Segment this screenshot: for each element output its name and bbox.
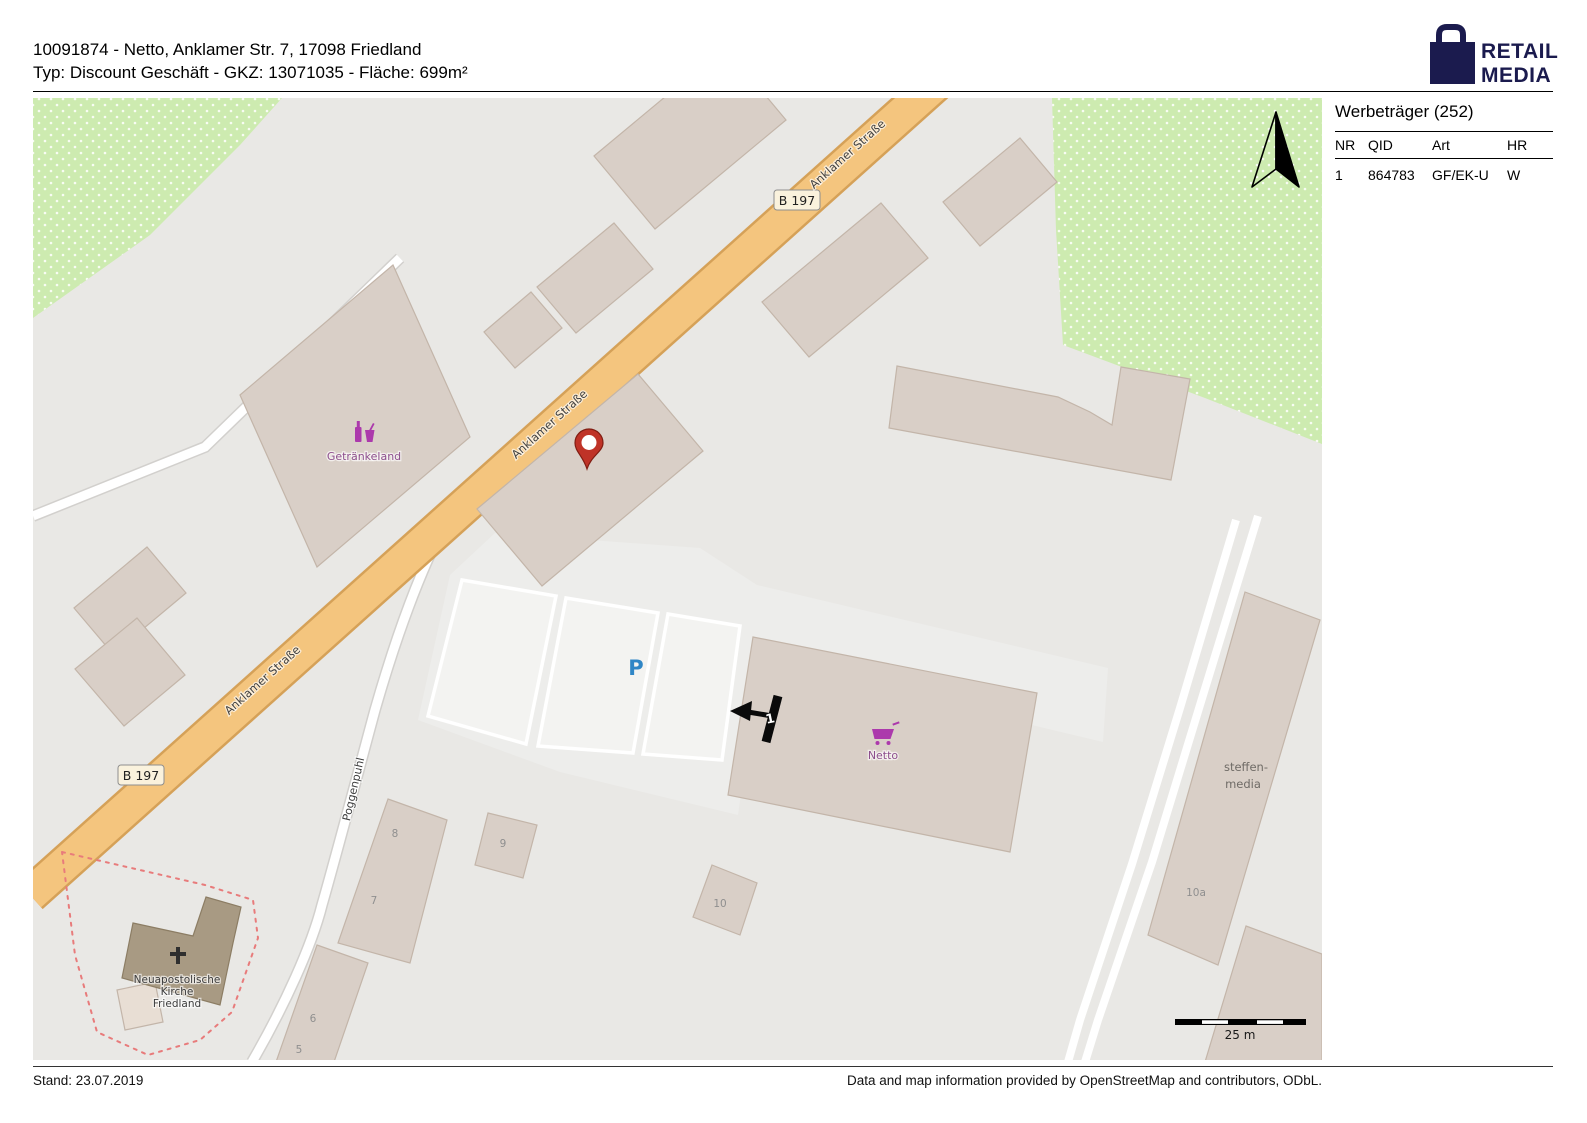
scale-label: 25 m <box>1225 1028 1256 1042</box>
svg-text:5: 5 <box>296 1044 303 1056</box>
col-header-hr: HR <box>1507 137 1553 153</box>
getraenkeland-label: Getränkeland <box>327 450 401 463</box>
cell-nr: 1 <box>1335 167 1368 183</box>
werbetraeger-title: Werbeträger (252) <box>1335 102 1553 122</box>
map: Neuapostolische Kirche Friedland B 197 B… <box>33 98 1322 1060</box>
page-title: 10091874 - Netto, Anklamer Str. 7, 17098… <box>33 40 421 60</box>
parking-icon: P <box>628 656 643 680</box>
col-header-art: Art <box>1432 137 1507 153</box>
svg-text:8: 8 <box>392 828 399 840</box>
footer-attribution: Data and map information provided by Ope… <box>847 1073 1322 1088</box>
svg-text:B 197: B 197 <box>123 768 159 783</box>
page-subtitle: Typ: Discount Geschäft - GKZ: 13071035 -… <box>33 63 468 83</box>
werbetraeger-table-row: 1 864783 GF/EK-U W <box>1335 159 1553 183</box>
svg-text:7: 7 <box>371 895 378 907</box>
netto-label: Netto <box>868 749 899 762</box>
report-page: 10091874 - Netto, Anklamer Str. 7, 17098… <box>0 0 1587 1123</box>
route-shield-b197-bottom: B 197 <box>118 765 164 785</box>
svg-text:10: 10 <box>713 898 726 910</box>
route-shield-b197-top: B 197 <box>774 190 820 210</box>
svg-text:10a: 10a <box>1186 887 1206 899</box>
logo-line1: RETAIL <box>1481 41 1558 62</box>
cell-art: GF/EK-U <box>1432 167 1507 183</box>
svg-text:Neuapostolische: Neuapostolische <box>134 974 221 986</box>
svg-text:B 197: B 197 <box>779 193 815 208</box>
footer-divider <box>33 1066 1553 1067</box>
col-header-qid: QID <box>1368 137 1432 153</box>
svg-text:Friedland: Friedland <box>153 998 201 1010</box>
svg-text:media: media <box>1225 777 1261 791</box>
cell-qid: 864783 <box>1368 167 1432 183</box>
footer: Stand: 23.07.2019 Data and map informati… <box>33 1073 1322 1088</box>
svg-text:6: 6 <box>310 1013 317 1025</box>
svg-text:9: 9 <box>500 838 507 850</box>
header-divider <box>33 91 1553 92</box>
retail-media-logo-bag-icon <box>1428 22 1478 86</box>
svg-text:Kirche: Kirche <box>161 986 194 998</box>
svg-text:steffen-: steffen- <box>1224 760 1268 774</box>
cell-hr: W <box>1507 167 1553 183</box>
col-header-nr: NR <box>1335 137 1368 153</box>
werbetraeger-panel: Werbeträger (252) NR QID Art HR 1 864783… <box>1335 102 1553 183</box>
logo-line2: MEDIA <box>1481 65 1551 86</box>
footer-date: Stand: 23.07.2019 <box>33 1073 143 1088</box>
werbetraeger-table-header: NR QID Art HR <box>1335 131 1553 159</box>
